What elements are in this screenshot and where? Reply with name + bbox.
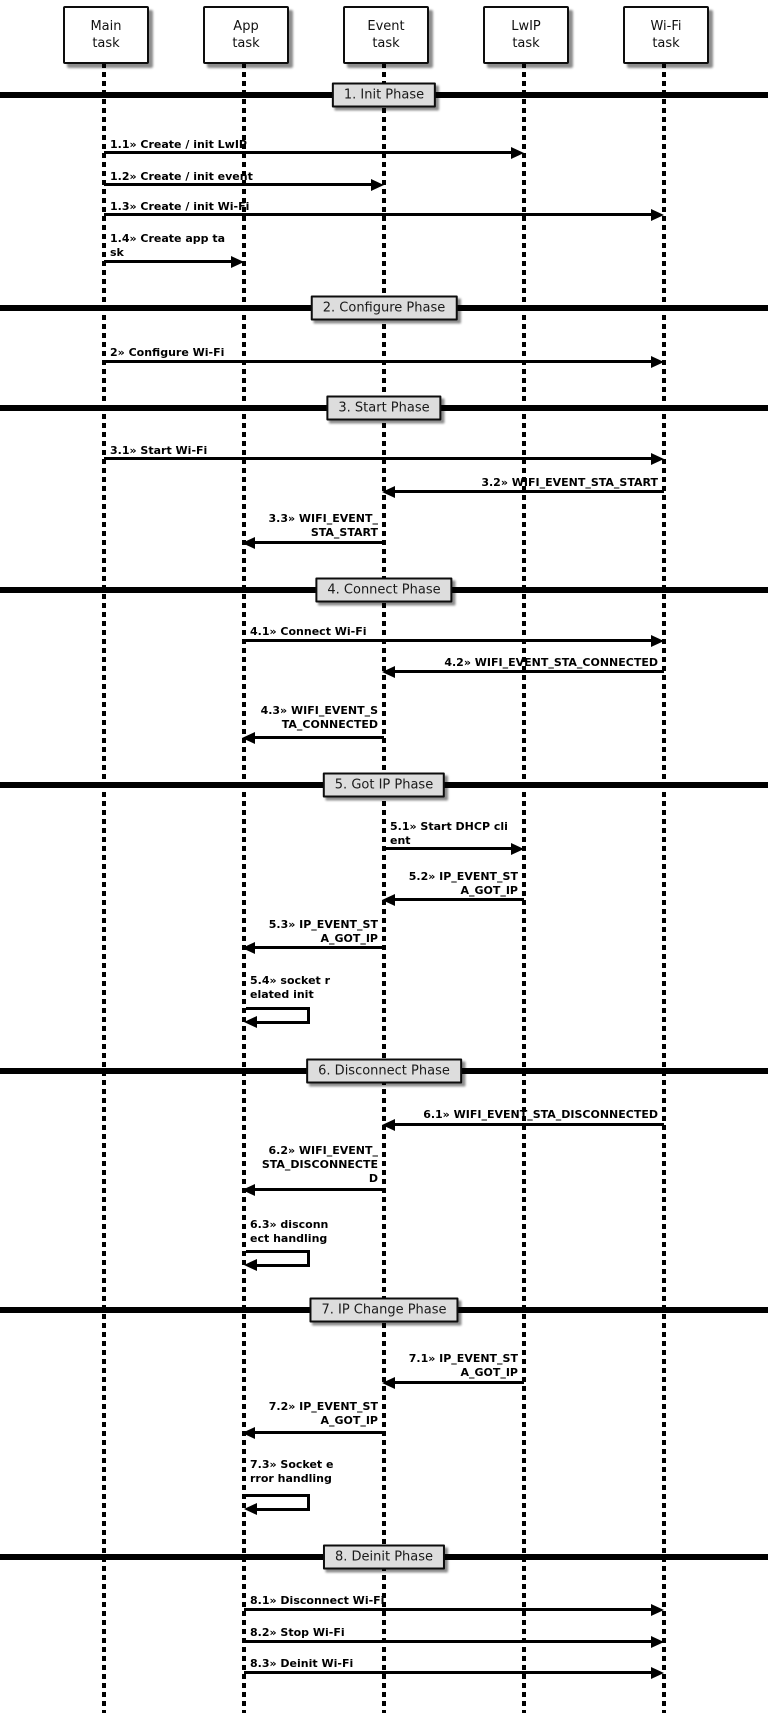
actor-box-event-task: Event task bbox=[343, 6, 429, 64]
arrow-line-6-1 bbox=[395, 1123, 664, 1126]
actor-box-lwip-task: LwIP task bbox=[483, 6, 569, 64]
self-loop-top-5-4 bbox=[246, 1007, 310, 1010]
arrowhead-4-1 bbox=[651, 635, 664, 647]
self-loop-bottom-5-4 bbox=[257, 1021, 310, 1024]
arrowhead-6-3 bbox=[244, 1259, 257, 1271]
actor-label: task bbox=[512, 35, 539, 52]
actor-label: Wi-Fi bbox=[650, 18, 681, 35]
arrowhead-5-2 bbox=[382, 894, 395, 906]
arrow-line-8-2 bbox=[244, 1640, 653, 1643]
arrow-line-1-4 bbox=[104, 260, 233, 263]
arrowhead-4-2 bbox=[382, 666, 395, 678]
arrowhead-6-1 bbox=[382, 1119, 395, 1131]
message-label-5-2: 5.2» IP_EVENT_ST A_GOT_IP bbox=[409, 870, 518, 898]
phase-label-got-ip: 5. Got IP Phase bbox=[323, 773, 445, 798]
actor-label: task bbox=[232, 35, 259, 52]
message-label-3-2: 3.2» WIFI_EVENT_STA_START bbox=[481, 476, 658, 490]
message-label-8-3: 8.3» Deinit Wi-Fi bbox=[250, 1657, 353, 1671]
message-label-7-3: 7.3» Socket e rror handling bbox=[250, 1458, 333, 1486]
arrowhead-8-3 bbox=[651, 1667, 664, 1679]
actor-label: LwIP bbox=[511, 18, 541, 35]
sequence-diagram: Main task App task Event task LwIP task … bbox=[0, 0, 768, 1713]
message-label-4-3: 4.3» WIFI_EVENT_S TA_CONNECTED bbox=[261, 704, 378, 732]
phase-label-configure: 2. Configure Phase bbox=[311, 296, 458, 321]
arrowhead-1-2 bbox=[371, 179, 384, 191]
arrow-line-8-3 bbox=[244, 1671, 653, 1674]
message-label-8-1: 8.1» Disconnect Wi-Fi bbox=[250, 1594, 384, 1608]
arrowhead-1-3 bbox=[651, 209, 664, 221]
arrowhead-3-2 bbox=[382, 486, 395, 498]
arrowhead-8-2 bbox=[651, 1636, 664, 1648]
message-label-5-3: 5.3» IP_EVENT_ST A_GOT_IP bbox=[269, 918, 378, 946]
arrowhead-1-1 bbox=[511, 147, 524, 159]
message-label-3-1: 3.1» Start Wi-Fi bbox=[110, 444, 207, 458]
message-label-2: 2» Configure Wi-Fi bbox=[110, 346, 224, 360]
arrow-line-4-3 bbox=[255, 736, 384, 739]
message-label-4-2: 4.2» WIFI_EVENT_STA_CONNECTED bbox=[444, 656, 658, 670]
message-label-5-1: 5.1» Start DHCP cli ent bbox=[390, 820, 508, 848]
arrow-line-4-2 bbox=[395, 670, 664, 673]
arrow-line-8-1 bbox=[244, 1608, 653, 1611]
arrow-line-2 bbox=[104, 360, 653, 363]
message-label-7-2: 7.2» IP_EVENT_ST A_GOT_IP bbox=[269, 1400, 378, 1428]
message-label-6-1: 6.1» WIFI_EVENT_STA_DISCONNECTED bbox=[423, 1108, 658, 1122]
message-label-4-1: 4.1» Connect Wi-Fi bbox=[250, 625, 367, 639]
arrow-line-6-2 bbox=[255, 1188, 384, 1191]
arrowhead-2 bbox=[651, 356, 664, 368]
phase-label-disconnect: 6. Disconnect Phase bbox=[306, 1059, 462, 1084]
message-label-7-1: 7.1» IP_EVENT_ST A_GOT_IP bbox=[409, 1352, 518, 1380]
phase-label-ip-change: 7. IP Change Phase bbox=[309, 1298, 458, 1323]
actor-label: App bbox=[233, 18, 258, 35]
message-label-1-2: 1.2» Create / init event bbox=[110, 170, 253, 184]
message-label-3-3: 3.3» WIFI_EVENT_ STA_START bbox=[268, 512, 378, 540]
message-label-1-3: 1.3» Create / init Wi-Fi bbox=[110, 200, 249, 214]
self-loop-bottom-6-3 bbox=[257, 1264, 310, 1267]
actor-label: Main bbox=[90, 18, 121, 35]
arrowhead-8-1 bbox=[651, 1604, 664, 1616]
arrowhead-5-1 bbox=[511, 843, 524, 855]
arrowhead-5-4 bbox=[244, 1016, 257, 1028]
actor-label: task bbox=[652, 35, 679, 52]
message-label-6-3: 6.3» disconn ect handling bbox=[250, 1218, 328, 1246]
message-label-8-2: 8.2» Stop Wi-Fi bbox=[250, 1626, 345, 1640]
phase-label-start: 3. Start Phase bbox=[326, 396, 441, 421]
actor-label: task bbox=[92, 35, 119, 52]
message-label-6-2: 6.2» WIFI_EVENT_ STA_DISCONNECTE D bbox=[262, 1144, 378, 1186]
actor-label: task bbox=[372, 35, 399, 52]
actor-box-wifi-task: Wi-Fi task bbox=[623, 6, 709, 64]
message-label-1-4: 1.4» Create app ta sk bbox=[110, 232, 225, 260]
arrowhead-5-3 bbox=[242, 942, 255, 954]
arrow-line-5-2 bbox=[395, 898, 524, 901]
self-loop-top-6-3 bbox=[246, 1250, 310, 1253]
arrow-line-4-1 bbox=[244, 639, 653, 642]
arrowhead-3-1 bbox=[651, 453, 664, 465]
arrow-line-3-2 bbox=[395, 490, 664, 493]
arrow-line-7-2 bbox=[255, 1431, 384, 1434]
phase-label-connect: 4. Connect Phase bbox=[315, 578, 452, 603]
arrowhead-7-1 bbox=[382, 1377, 395, 1389]
arrowhead-6-2 bbox=[242, 1184, 255, 1196]
self-loop-top-7-3 bbox=[246, 1494, 310, 1497]
actor-box-app-task: App task bbox=[203, 6, 289, 64]
message-label-5-4: 5.4» socket r elated init bbox=[250, 974, 330, 1002]
arrow-line-5-3 bbox=[255, 946, 384, 949]
self-loop-bottom-7-3 bbox=[257, 1508, 310, 1511]
phase-label-deinit: 8. Deinit Phase bbox=[323, 1545, 445, 1570]
arrow-line-7-1 bbox=[395, 1381, 524, 1384]
arrowhead-7-3 bbox=[244, 1503, 257, 1515]
arrowhead-4-3 bbox=[242, 732, 255, 744]
phase-label-init: 1. Init Phase bbox=[332, 83, 436, 108]
actor-label: Event bbox=[367, 18, 404, 35]
message-label-1-1: 1.1» Create / init LwIP bbox=[110, 138, 247, 152]
arrowhead-1-4 bbox=[231, 256, 244, 268]
arrowhead-3-3 bbox=[242, 537, 255, 549]
arrow-line-3-3 bbox=[255, 541, 384, 544]
actor-box-main-task: Main task bbox=[63, 6, 149, 64]
arrowhead-7-2 bbox=[242, 1427, 255, 1439]
